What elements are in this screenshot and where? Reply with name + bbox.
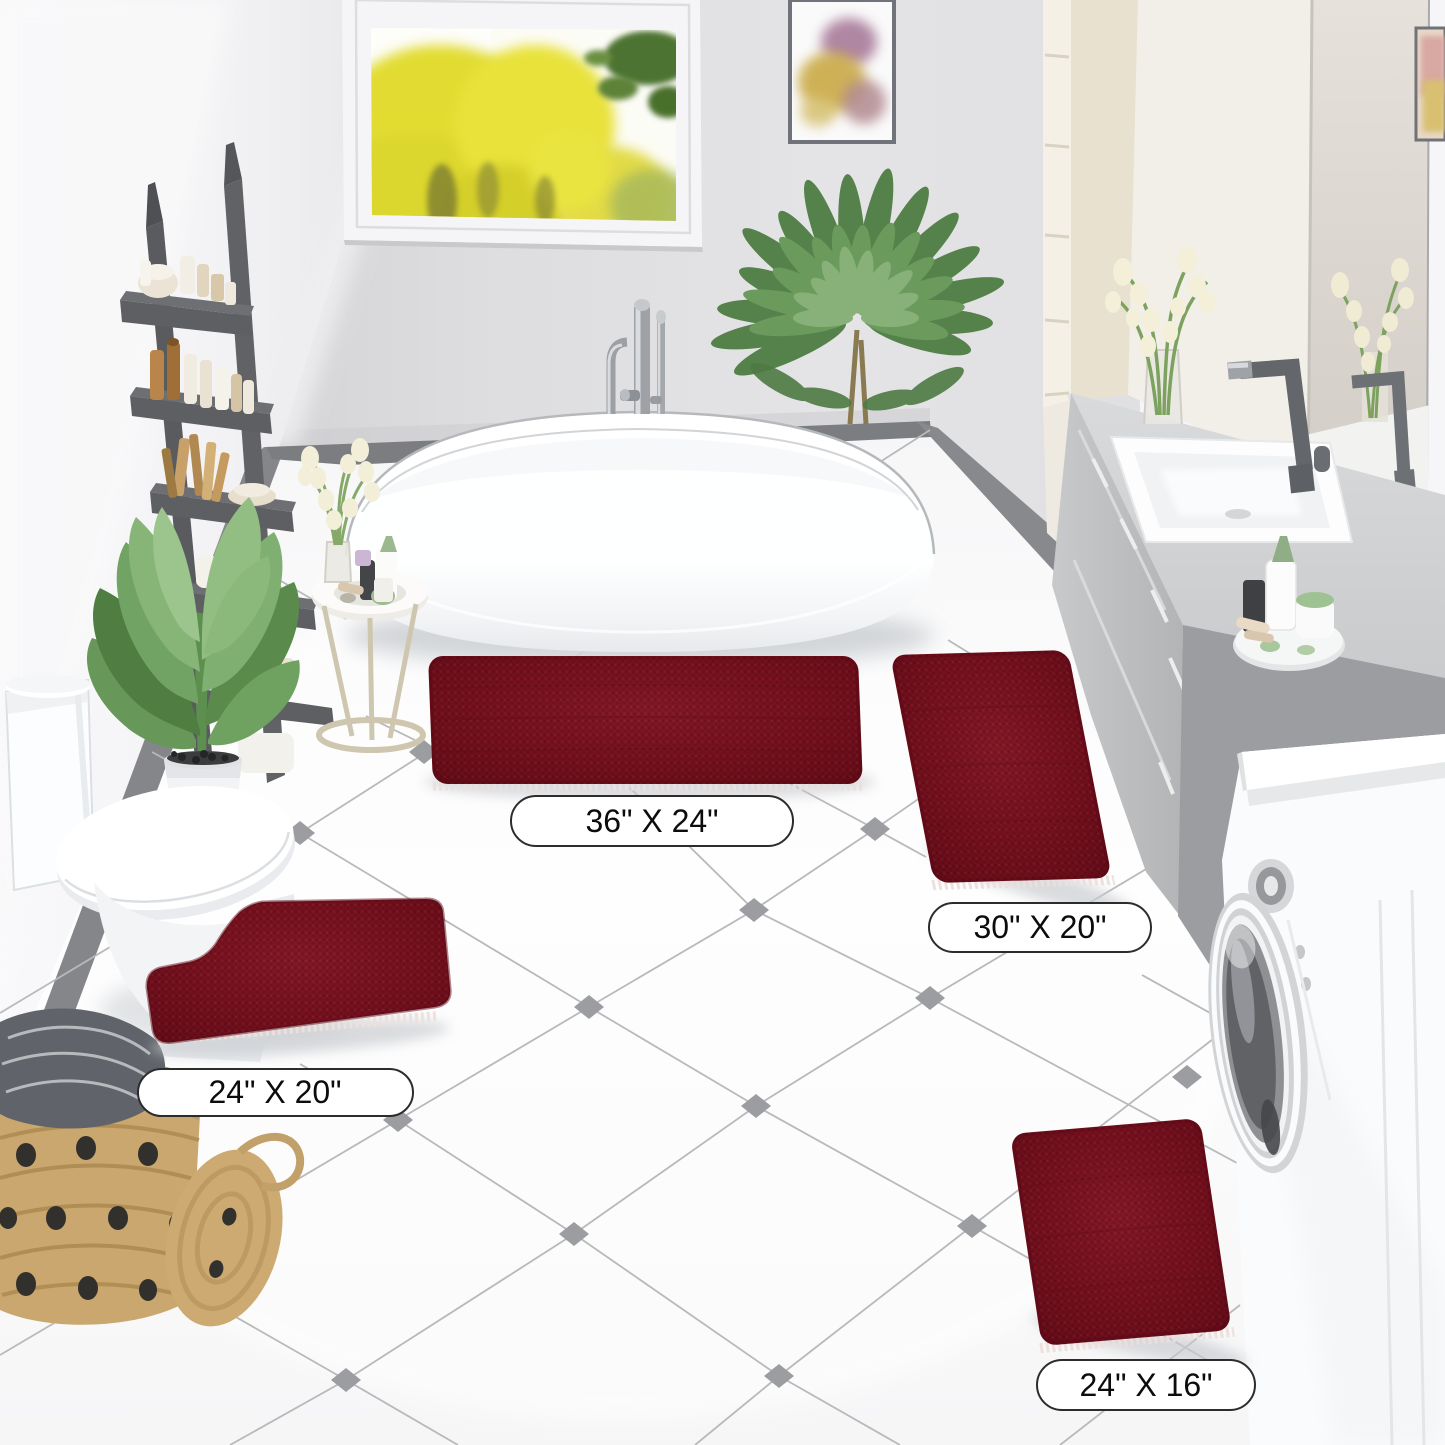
svg-text:24" X 16": 24" X 16"	[1079, 1367, 1212, 1403]
svg-text:30" X 20": 30" X 20"	[973, 909, 1106, 945]
svg-text:36" X 24": 36" X 24"	[585, 803, 718, 839]
svg-text:24" X 20": 24" X 20"	[208, 1074, 341, 1110]
